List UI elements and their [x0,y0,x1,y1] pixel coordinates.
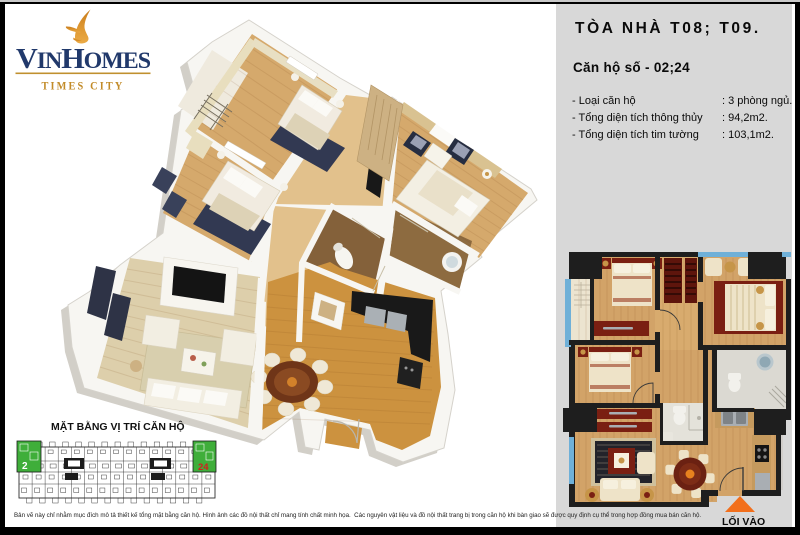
svg-text:24: 24 [198,462,209,473]
svg-text:2: 2 [22,461,28,472]
